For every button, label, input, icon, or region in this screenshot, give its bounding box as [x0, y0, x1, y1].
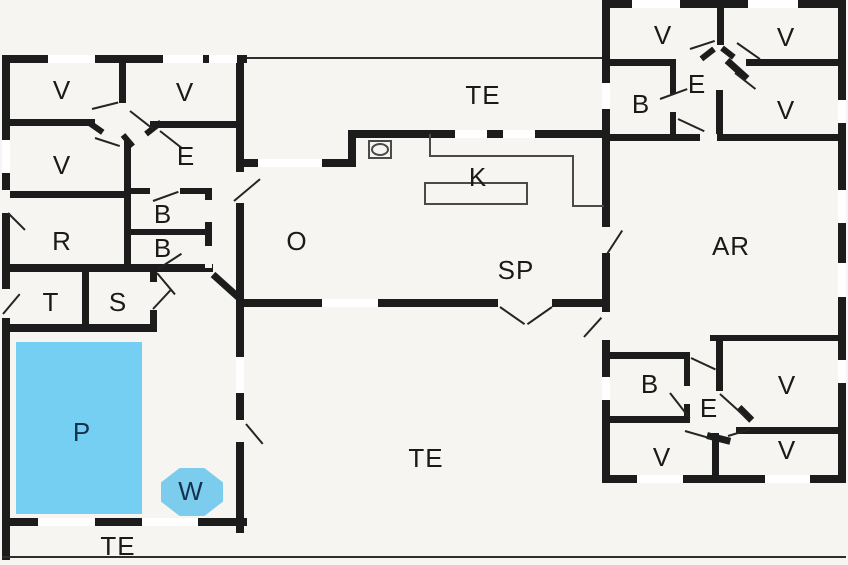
door-opening — [684, 386, 690, 404]
door-swing-line — [95, 137, 120, 147]
terrace-boundary-line — [247, 57, 602, 59]
wall-segment — [717, 8, 724, 45]
door-opening — [2, 190, 10, 213]
window-opening — [602, 377, 610, 400]
wall-segment — [608, 416, 690, 423]
window-opening — [637, 475, 683, 483]
room-label-v-topright-2: V — [777, 24, 795, 50]
door-swing-line — [245, 423, 263, 444]
kitchen-fixture-icon — [368, 140, 392, 159]
wall-segment — [736, 427, 846, 434]
wall-segment — [119, 57, 126, 103]
window-opening — [2, 140, 10, 173]
room-label-v-topright-3: V — [777, 97, 795, 123]
window-opening — [209, 55, 237, 63]
wall-segment — [838, 0, 846, 483]
wall-segment — [746, 59, 846, 66]
room-label-b-bottomright: B — [641, 371, 659, 397]
room-label-ar: AR — [712, 233, 750, 259]
room-label-terrace-top: TE — [465, 82, 500, 108]
window-opening — [142, 518, 198, 526]
floor-plan: V V E V R B B T S P W TE TE O K SP TE AR… — [0, 0, 848, 565]
room-label-e-topright: E — [688, 71, 706, 97]
window-opening — [48, 55, 95, 63]
door-opening — [602, 312, 610, 340]
room-label-v-topright-1: V — [654, 22, 672, 48]
door-opening — [700, 134, 717, 141]
door-swing-line — [583, 317, 602, 338]
room-label-terrace-bottom-left: TE — [100, 533, 135, 559]
window-opening — [455, 130, 487, 138]
room-label-v-bottomright-2: V — [653, 444, 671, 470]
window-opening — [503, 130, 535, 138]
wall-segment — [236, 300, 244, 533]
wall-segment — [710, 335, 846, 341]
room-label-e-bottomright: E — [700, 395, 718, 421]
room-label-b-left-2: B — [154, 235, 172, 261]
window-opening — [602, 83, 610, 109]
wall-segment — [602, 134, 846, 141]
kitchen-counter-line — [572, 155, 574, 207]
wall-segment — [610, 59, 676, 66]
door-swing-line — [736, 42, 760, 60]
window-opening — [38, 518, 95, 526]
door-opening — [205, 246, 212, 268]
door-opening — [205, 200, 212, 222]
room-label-k: K — [469, 164, 487, 190]
wall-segment — [716, 90, 723, 138]
room-label-b-topright: B — [632, 91, 650, 117]
wall-segment — [150, 121, 244, 128]
room-label-o: O — [286, 228, 307, 254]
wall-jamb — [121, 133, 135, 148]
room-label-v-left-3: V — [53, 152, 71, 178]
door-swing-line — [129, 110, 153, 129]
wall-segment — [2, 191, 131, 198]
room-label-s: S — [109, 289, 127, 315]
door-swing-line — [691, 357, 716, 370]
room-label-r: R — [52, 228, 72, 254]
door-swing-line — [527, 306, 553, 325]
wall-segment — [602, 352, 690, 359]
window-opening — [838, 263, 846, 297]
door-opening — [670, 94, 676, 112]
door-swing-line — [92, 101, 119, 109]
room-label-whirlpool: W — [178, 478, 204, 504]
window-opening — [632, 0, 680, 8]
kitchen-fixture-oval — [371, 143, 389, 156]
wall-jamb — [86, 120, 104, 135]
door-opening — [236, 420, 244, 442]
window-opening — [838, 100, 846, 123]
room-label-terrace-bottom: TE — [408, 445, 443, 471]
wall-jamb — [737, 405, 755, 423]
kitchen-counter-line — [429, 155, 574, 157]
window-opening — [765, 475, 810, 483]
room-label-v-bottomright-1: V — [778, 372, 796, 398]
door-swing-line — [678, 118, 705, 132]
window-opening — [748, 0, 798, 8]
room-label-v-bottomright-3: V — [778, 437, 796, 463]
door-swing-line — [499, 306, 525, 325]
room-label-pool: P — [73, 419, 91, 445]
wall-jamb — [700, 47, 716, 62]
room-label-sp: SP — [498, 257, 535, 283]
window-opening — [258, 159, 322, 167]
window-opening — [322, 299, 378, 307]
room-label-v-topleft-1: V — [53, 77, 71, 103]
room-label-b-left-1: B — [154, 201, 172, 227]
window-opening — [236, 357, 244, 393]
door-swing-line — [7, 212, 25, 230]
wall-segment — [236, 299, 610, 307]
wall-segment — [82, 272, 89, 331]
wall-segment — [716, 341, 723, 391]
window-opening — [838, 190, 846, 223]
wall-segment — [2, 119, 95, 126]
room-label-v-topleft-2: V — [176, 79, 194, 105]
room-label-t: T — [43, 289, 60, 315]
room-label-e-left: E — [177, 143, 195, 169]
kitchen-counter-line — [429, 134, 431, 157]
wall-segment — [2, 324, 157, 332]
door-opening — [498, 299, 552, 307]
wall-segment — [2, 264, 131, 272]
kitchen-counter-line — [572, 205, 604, 207]
wall-segment — [124, 140, 131, 271]
window-opening — [838, 360, 846, 383]
window-opening — [163, 55, 203, 63]
